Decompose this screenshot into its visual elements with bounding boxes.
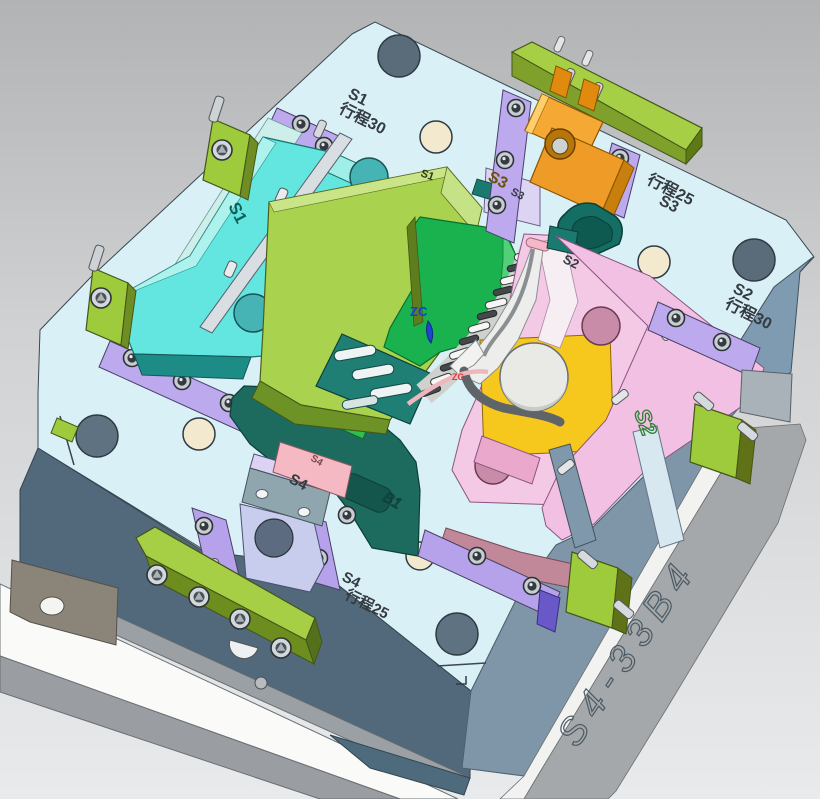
svg-text:ZC: ZC — [410, 304, 428, 319]
svg-text:ZC: ZC — [452, 372, 464, 382]
